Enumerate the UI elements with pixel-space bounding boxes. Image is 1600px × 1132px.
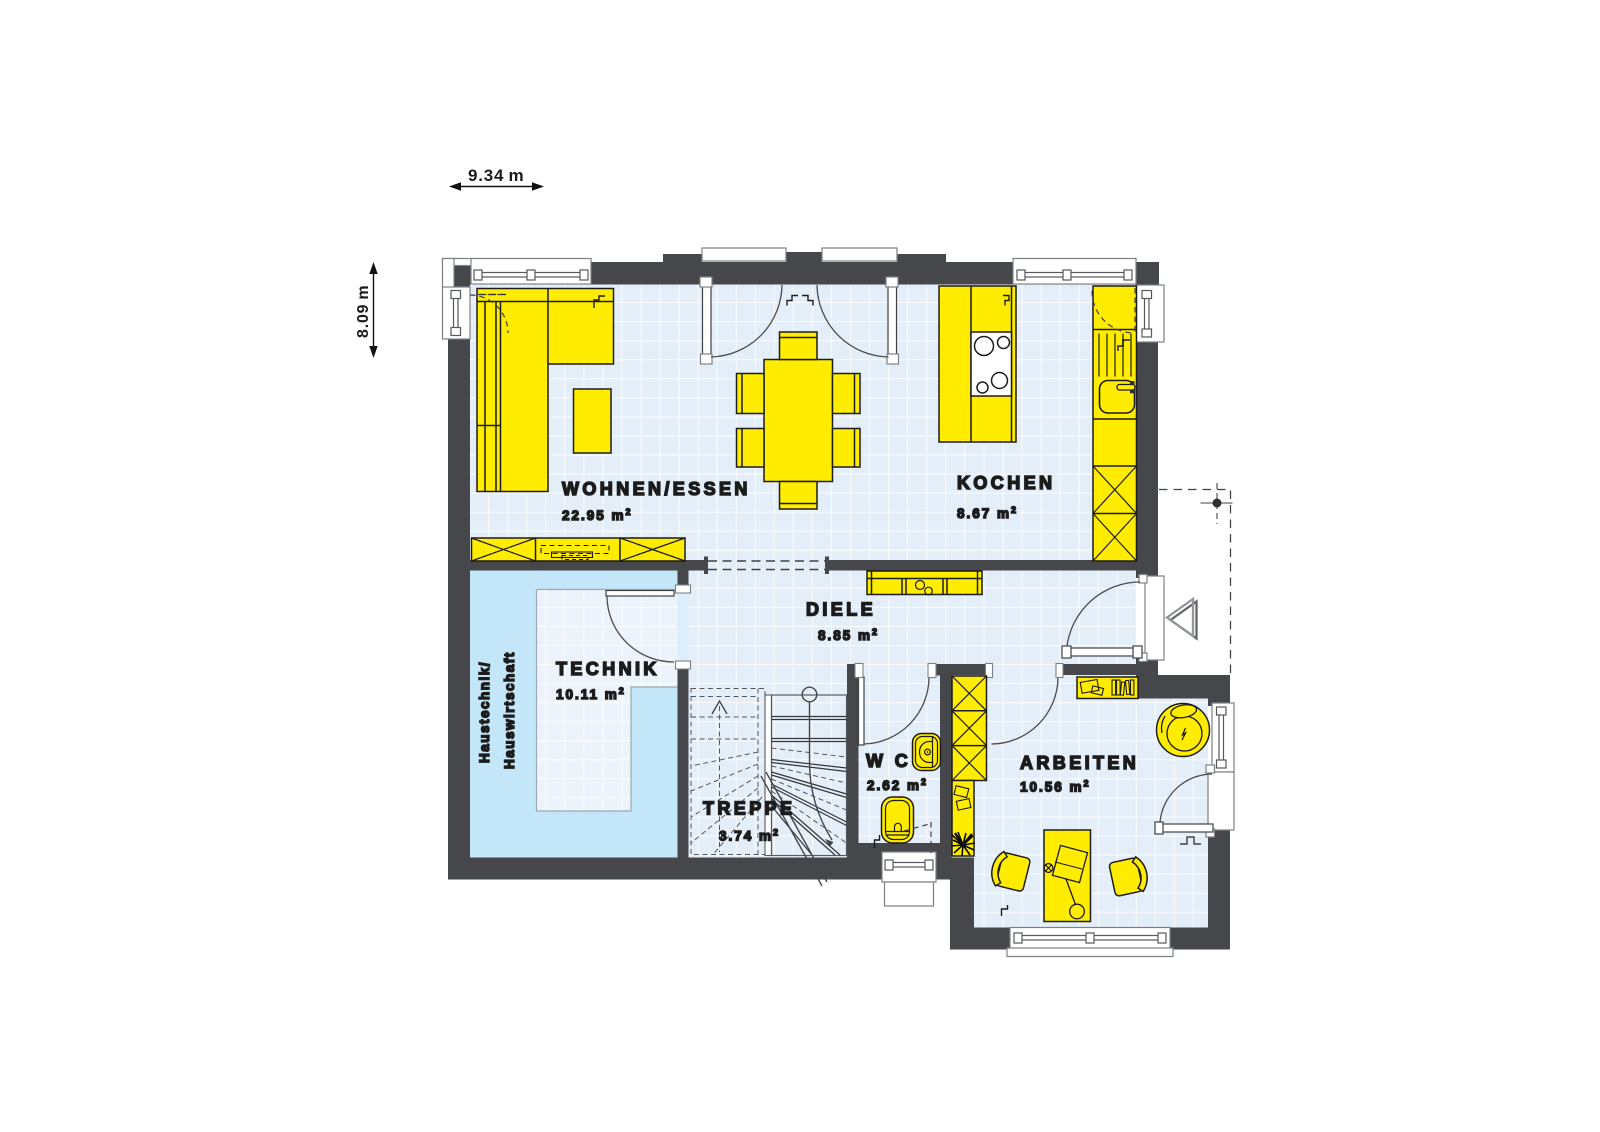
svg-text:8.85 m2: 8.85 m2 [818, 627, 879, 643]
svg-text:3.74 m2: 3.74 m2 [719, 828, 780, 844]
svg-text:Hauswirtschaft: Hauswirtschaft [502, 651, 517, 769]
svg-text:ARBEITEN: ARBEITEN [1020, 753, 1139, 773]
svg-text:8.09 m: 8.09 m [355, 285, 372, 338]
svg-text:W C: W C [866, 751, 911, 771]
svg-text:TREPPE: TREPPE [703, 799, 795, 819]
svg-text:22.95 m2: 22.95 m2 [562, 507, 633, 523]
svg-text:TECHNIK: TECHNIK [556, 659, 660, 679]
svg-text:WOHNEN/ESSEN: WOHNEN/ESSEN [562, 479, 751, 499]
svg-text:8.67 m2: 8.67 m2 [957, 505, 1018, 521]
svg-text:10.11 m2: 10.11 m2 [556, 686, 626, 702]
svg-text:10.56 m2: 10.56 m2 [1020, 779, 1091, 795]
svg-text:Haustechnik/: Haustechnik/ [477, 661, 492, 763]
svg-text:2.62 m2: 2.62 m2 [867, 777, 928, 793]
svg-text:DIELE: DIELE [806, 600, 876, 620]
svg-text:9.34 m: 9.34 m [468, 166, 524, 185]
svg-text:KOCHEN: KOCHEN [957, 473, 1055, 493]
